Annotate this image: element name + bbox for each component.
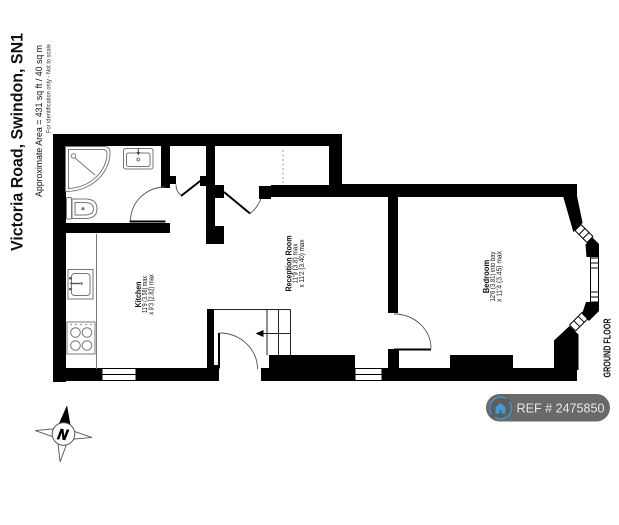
svg-text:GROUND FLOOR: GROUND FLOOR xyxy=(602,318,613,378)
svg-text:x 11'4 (3.45) max: x 11'4 (3.45) max xyxy=(494,251,503,302)
svg-text:REF # 2475850: REF # 2475850 xyxy=(517,401,605,416)
svg-text:x 11'2 (3.40) max: x 11'2 (3.40) max xyxy=(297,239,306,287)
svg-text:x 9'3 (2.82) max: x 9'3 (2.82) max xyxy=(147,274,156,315)
svg-text:Approximate Area = 431 sq ft /: Approximate Area = 431 sq ft / 40 sq m xyxy=(34,45,44,197)
svg-text:Victoria Road, Swindon, SN1: Victoria Road, Swindon, SN1 xyxy=(9,33,27,251)
svg-text:For identification only - Not: For identification only - Not to scale xyxy=(46,44,53,133)
